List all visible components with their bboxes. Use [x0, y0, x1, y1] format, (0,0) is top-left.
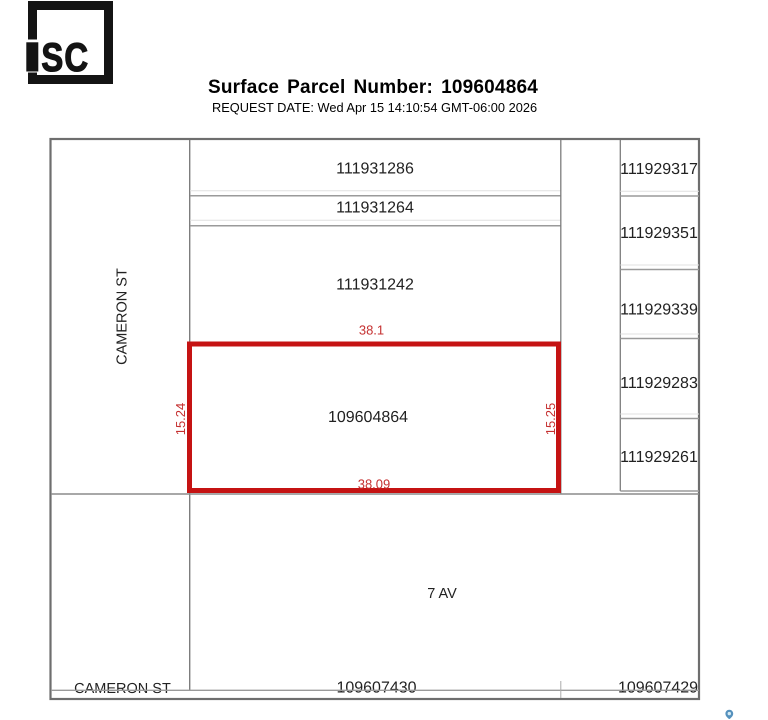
svg-text:111929261: 111929261 — [620, 449, 698, 466]
svg-text:38.1: 38.1 — [359, 323, 384, 338]
svg-text:111929317: 111929317 — [620, 161, 698, 178]
svg-text:CAMERON ST: CAMERON ST — [74, 681, 171, 697]
svg-text:111931242: 111931242 — [336, 277, 414, 294]
svg-text:111929339: 111929339 — [620, 302, 698, 319]
svg-text:109607429: 109607429 — [618, 680, 698, 697]
svg-text:CAMERON ST: CAMERON ST — [114, 268, 130, 365]
svg-text:111931264: 111931264 — [336, 200, 414, 217]
svg-text:15.25: 15.25 — [543, 403, 558, 436]
svg-text:109607430: 109607430 — [336, 680, 416, 697]
svg-text:109604864: 109604864 — [328, 409, 408, 426]
svg-text:111931286: 111931286 — [336, 161, 414, 178]
svg-text:7 AV: 7 AV — [427, 586, 457, 602]
svg-text:111929283: 111929283 — [620, 375, 698, 392]
svg-text:38.09: 38.09 — [358, 477, 391, 492]
svg-text:15.24: 15.24 — [173, 403, 188, 436]
svg-text:111929351: 111929351 — [620, 225, 698, 242]
